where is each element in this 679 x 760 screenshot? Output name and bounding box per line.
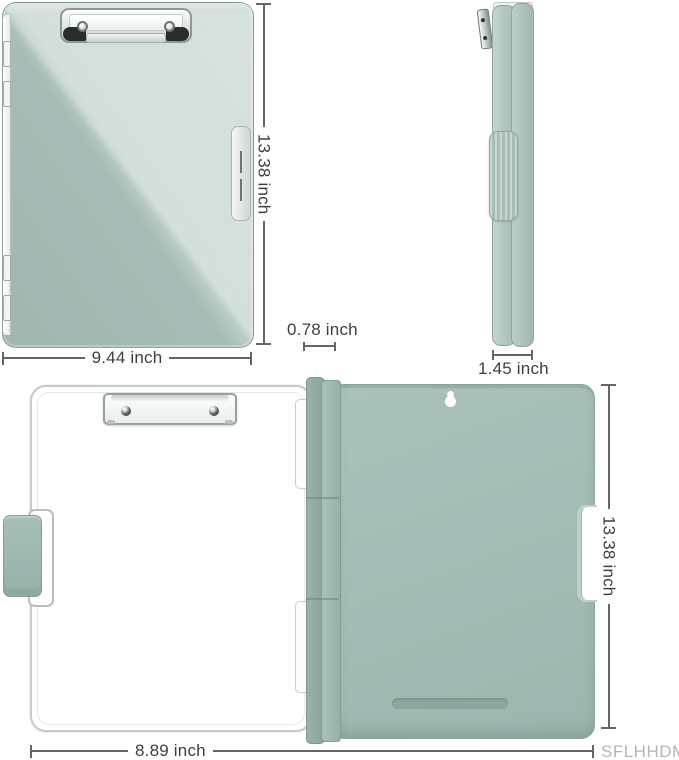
side-latch-closed-view bbox=[231, 126, 251, 221]
dimension-line bbox=[32, 750, 128, 752]
spine-seam bbox=[306, 497, 339, 499]
dimension-label-open-height: 13.38 inch bbox=[599, 509, 619, 603]
back-panel-open-view bbox=[330, 384, 595, 739]
dimension-tick bbox=[256, 343, 271, 345]
keyhole-bottom-circle bbox=[445, 396, 456, 407]
dimension-label-closed-height: 13.38 inch bbox=[254, 127, 274, 221]
spine-strip-inner bbox=[321, 380, 341, 742]
keyhole-hang-hole bbox=[443, 390, 458, 409]
dimension-closed-height: 13.38 inch bbox=[255, 3, 272, 345]
side-view-latch-ridges bbox=[489, 131, 518, 221]
dimension-spine-thickness bbox=[303, 341, 336, 351]
dimension-tick bbox=[250, 352, 252, 365]
dimension-line bbox=[169, 357, 250, 359]
dimension-open-width: 8.89 inch bbox=[30, 742, 594, 760]
clip-rivet-left bbox=[121, 406, 131, 416]
dimension-label-side-thickness: 1.45 inch bbox=[478, 359, 548, 379]
clip-screw-right bbox=[164, 21, 175, 32]
lever-detail bbox=[481, 18, 485, 22]
panel-edge-notch bbox=[577, 505, 597, 602]
open-white-writing-board bbox=[30, 385, 312, 732]
dimension-line bbox=[213, 750, 592, 752]
latch-tab-open-view bbox=[3, 515, 42, 597]
lever-detail bbox=[483, 36, 487, 40]
clip-lever-side-view bbox=[477, 8, 494, 49]
closed-clipboard-body bbox=[2, 2, 254, 348]
panel-bottom-slot bbox=[392, 698, 508, 709]
spine-seam bbox=[306, 598, 339, 600]
dimension-line bbox=[608, 604, 610, 727]
dimension-line bbox=[494, 354, 531, 356]
dimension-closed-width: 9.44 inch bbox=[2, 345, 252, 371]
metal-clip-open-view bbox=[103, 393, 237, 425]
dimension-label-closed-width: 9.44 inch bbox=[85, 348, 170, 368]
dimension-line bbox=[263, 5, 265, 127]
clip-top-shade bbox=[111, 395, 229, 401]
dimension-line bbox=[608, 386, 610, 509]
dimension-label-spine-thickness: 0.78 inch bbox=[287, 320, 353, 340]
dimension-tick bbox=[334, 342, 336, 351]
clip-foot bbox=[225, 420, 233, 424]
dimension-label-open-width: 8.89 inch bbox=[128, 741, 213, 760]
dimension-open-height: 13.38 inch bbox=[600, 384, 617, 729]
dimension-tick bbox=[592, 745, 594, 758]
hinge-mark bbox=[3, 295, 11, 321]
clip-screw-left bbox=[77, 21, 88, 32]
glare-reflection bbox=[3, 3, 253, 347]
dimension-line bbox=[4, 357, 85, 359]
dimension-line bbox=[263, 221, 265, 343]
dimension-tick bbox=[531, 350, 533, 360]
latch-slit bbox=[240, 151, 242, 173]
product-image: 13.38 inch 9.44 inch 1.45 inch 0.78 inch bbox=[0, 0, 679, 760]
metal-clip-closed-view bbox=[60, 8, 192, 43]
clip-foot bbox=[107, 420, 115, 424]
page-inner-line bbox=[37, 392, 305, 725]
dimension-line bbox=[305, 345, 334, 347]
clip-rivet-right bbox=[209, 406, 219, 416]
brand-label: SFLHHDM bbox=[601, 742, 679, 760]
hinge-mark bbox=[3, 255, 11, 281]
latch-slit bbox=[240, 179, 242, 201]
hinge-mark bbox=[3, 41, 11, 67]
clip-lip bbox=[86, 33, 166, 43]
hinge-mark bbox=[3, 81, 11, 107]
dimension-tick bbox=[601, 727, 616, 729]
